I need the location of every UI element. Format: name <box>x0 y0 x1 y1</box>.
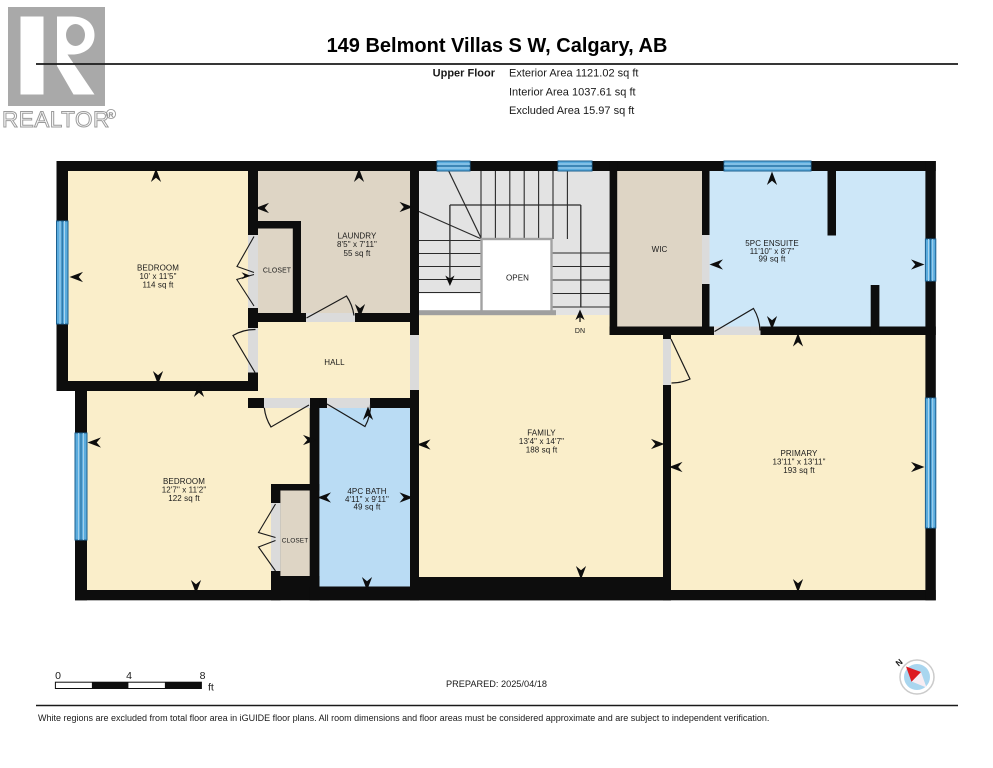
svg-text:CLOSET: CLOSET <box>282 538 309 545</box>
svg-text:114 sq ft: 114 sq ft <box>143 281 175 290</box>
svg-text:Upper Floor: Upper Floor <box>433 68 496 80</box>
svg-text:OPEN: OPEN <box>506 274 529 283</box>
svg-text:4: 4 <box>126 670 132 682</box>
svg-text:R: R <box>109 112 114 119</box>
svg-text:HALL: HALL <box>324 358 345 367</box>
svg-text:WIC: WIC <box>652 245 668 254</box>
svg-text:ft: ft <box>208 682 214 694</box>
svg-text:Excluded Area 15.97 sq ft: Excluded Area 15.97 sq ft <box>509 105 634 117</box>
svg-text:REALTOR: REALTOR <box>2 107 110 132</box>
svg-text:122 sq ft: 122 sq ft <box>168 494 200 503</box>
svg-text:193 sq ft: 193 sq ft <box>783 466 815 475</box>
svg-text:99 sq ft: 99 sq ft <box>758 255 786 264</box>
svg-text:55 sq ft: 55 sq ft <box>343 249 371 258</box>
svg-text:188 sq ft: 188 sq ft <box>526 446 558 455</box>
svg-text:CLOSET: CLOSET <box>263 268 292 275</box>
svg-text:DN: DN <box>575 328 585 335</box>
svg-text:White regions are excluded fro: White regions are excluded from total fl… <box>38 713 769 723</box>
svg-text:49 sq ft: 49 sq ft <box>353 503 381 512</box>
svg-text:8: 8 <box>200 670 206 682</box>
svg-text:149 Belmont Villas S W, Calgar: 149 Belmont Villas S W, Calgary, AB <box>327 35 668 57</box>
svg-text:PREPARED: 2025/04/18: PREPARED: 2025/04/18 <box>446 679 547 689</box>
svg-text:Interior Area 1037.61 sq ft: Interior Area 1037.61 sq ft <box>509 86 636 98</box>
svg-text:0: 0 <box>55 670 61 682</box>
svg-text:Exterior Area 1121.02 sq ft: Exterior Area 1121.02 sq ft <box>509 68 638 80</box>
